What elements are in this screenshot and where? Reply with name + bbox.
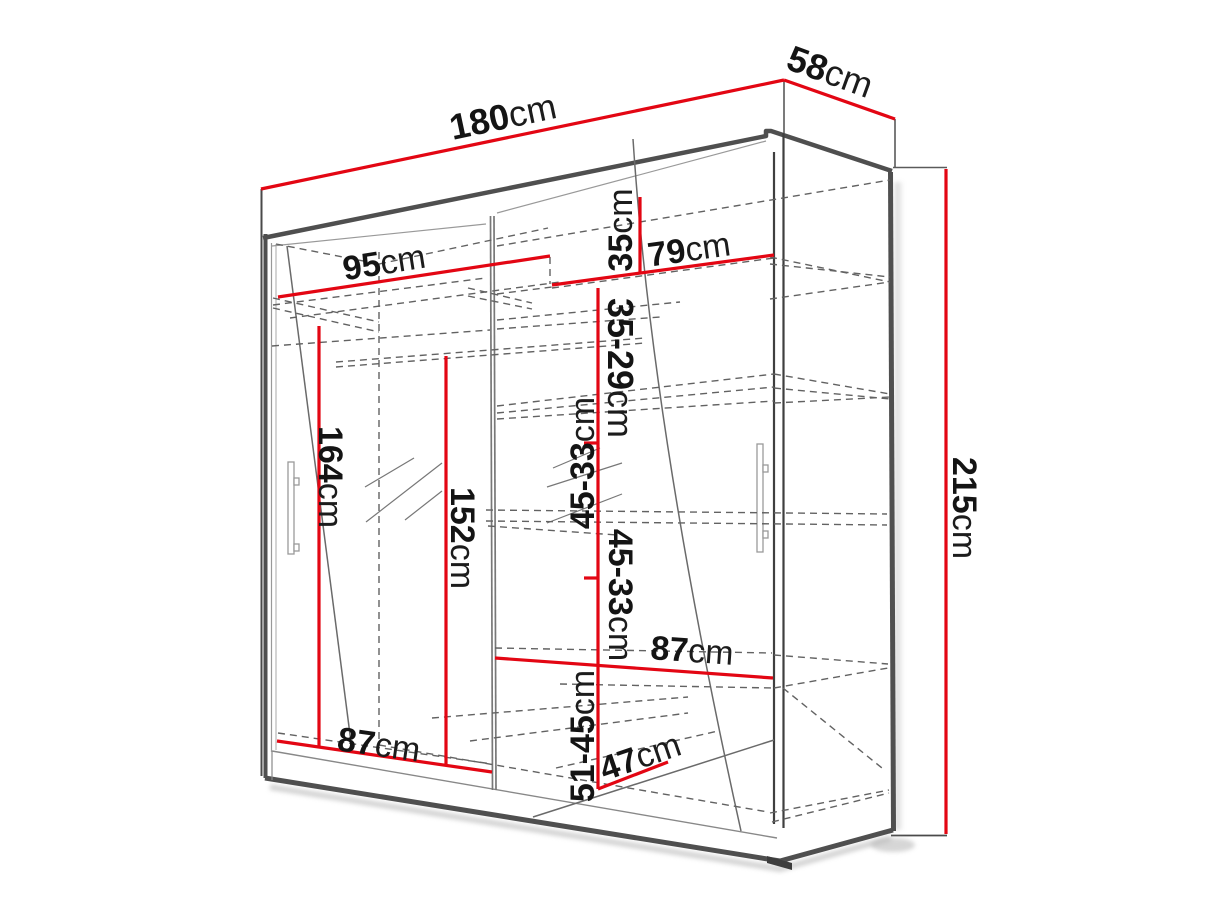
- svg-text:35-29cm: 35-29cm: [600, 298, 641, 438]
- svg-text:87cm: 87cm: [649, 629, 735, 673]
- svg-text:45-33cm: 45-33cm: [564, 397, 602, 529]
- svg-text:45-33cm: 45-33cm: [601, 529, 639, 661]
- svg-text:164cm: 164cm: [311, 426, 349, 528]
- svg-text:215cm: 215cm: [945, 457, 983, 559]
- svg-text:51-45cm: 51-45cm: [564, 670, 602, 802]
- svg-text:152cm: 152cm: [443, 487, 481, 589]
- svg-text:35cm: 35cm: [602, 188, 640, 271]
